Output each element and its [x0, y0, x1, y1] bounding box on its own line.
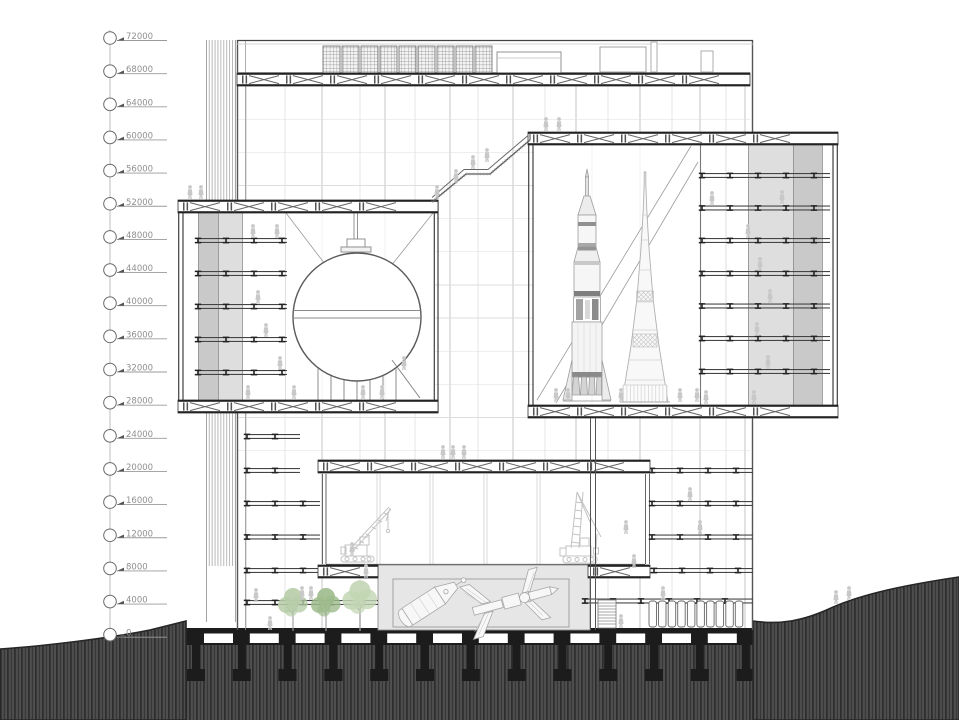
locker-unit: [687, 601, 704, 627]
floor-slab: [244, 468, 300, 474]
elevation-label: 32000: [126, 364, 153, 374]
floor-slab: [649, 501, 753, 507]
truss: [528, 132, 838, 145]
elevation-marker: 4000: [104, 595, 167, 608]
pile: [238, 645, 246, 669]
pile-footing: [691, 669, 709, 681]
elevation-marker: 60000: [104, 131, 167, 144]
exhibition-hall: [323, 473, 650, 565]
truss: [318, 460, 650, 473]
pile-footing: [553, 669, 571, 681]
human-figure: [188, 185, 193, 199]
main-roof-truss: [237, 73, 750, 86]
elevation-label: 4000: [126, 596, 148, 606]
elevation-label: 24000: [126, 430, 153, 440]
locker-unit: [707, 601, 724, 627]
elevation-marker: 32000: [104, 363, 167, 376]
floor-slab: [649, 468, 753, 474]
pile: [329, 645, 337, 669]
elevation-label: 52000: [126, 198, 153, 208]
tree: [342, 580, 377, 631]
elevation-scale: 7200068000640006000056000520004800044000…: [104, 30, 167, 641]
pile: [558, 645, 566, 669]
truss: [237, 73, 750, 86]
locker-doors: [649, 601, 743, 627]
roof-equipment-unit: [399, 46, 416, 73]
section-drawing-page: 7200068000640006000056000520004800044000…: [0, 0, 959, 720]
roof-equipment-unit: [323, 46, 340, 73]
roof-access-door: [701, 51, 713, 72]
elevation-marker: 72000: [104, 32, 167, 45]
elevation-label: 12000: [126, 529, 153, 539]
core-band-dark: [198, 213, 218, 400]
floor-slab: [244, 568, 320, 574]
pile: [604, 645, 612, 669]
truss: [528, 405, 838, 418]
elevation-marker: 56000: [104, 164, 167, 177]
pile-footing: [416, 669, 434, 681]
elevation-label: 8000: [126, 562, 148, 572]
human-figure: [544, 117, 549, 131]
elevation-marker: 28000: [104, 396, 167, 409]
elevation-marker: 12000: [104, 529, 167, 542]
floor-slab: [244, 434, 300, 440]
human-figure: [485, 148, 490, 162]
pile: [421, 645, 429, 669]
roof-equipment-unit: [456, 46, 473, 73]
human-figure: [847, 586, 852, 600]
pile: [192, 645, 200, 669]
elevation-marker: 44000: [104, 264, 167, 277]
elevation-label: 64000: [126, 98, 153, 108]
pile-footing: [737, 669, 755, 681]
pile: [467, 645, 475, 669]
elevation-label: 44000: [126, 264, 153, 274]
roof-equipment: [323, 42, 713, 73]
human-figure: [471, 155, 476, 169]
elevation-marker: 16000: [104, 496, 167, 509]
elevation-label: 48000: [126, 231, 153, 241]
locker-unit: [649, 601, 666, 627]
truss: [178, 200, 438, 213]
access-ramp: [432, 133, 530, 202]
roof-equipment-unit: [418, 46, 435, 73]
pile: [375, 645, 383, 669]
truss: [588, 565, 650, 578]
pile-footing: [324, 669, 342, 681]
pile: [513, 645, 521, 669]
elevation-label: 60000: [126, 131, 153, 141]
human-figure: [688, 487, 693, 501]
pile-footing: [645, 669, 663, 681]
pile: [696, 645, 704, 669]
human-figure: [254, 588, 259, 602]
roof-equipment-unit: [475, 46, 492, 73]
pile-footing: [370, 669, 388, 681]
elevation-marker: 52000: [104, 197, 167, 210]
truss: [318, 565, 378, 578]
elevation-label: 68000: [126, 65, 153, 75]
roof-equipment-unit: [342, 46, 359, 73]
terrain-right-slope: [753, 577, 959, 720]
roof-equipment-unit: [437, 46, 454, 73]
elevation-label: 56000: [126, 165, 153, 175]
elevation-label: 20000: [126, 463, 153, 473]
human-figure: [619, 614, 624, 628]
building-section: [178, 40, 852, 639]
elevation-label: 40000: [126, 297, 153, 307]
human-figure: [834, 590, 839, 604]
section-drawing: 7200068000640006000056000520004800044000…: [0, 0, 959, 720]
elevation-label: 36000: [126, 330, 153, 340]
floor-slab: [244, 534, 320, 540]
sphere-hall: [179, 200, 438, 413]
human-figure: [441, 445, 446, 459]
tree: [311, 588, 341, 631]
elevation-label: 0: [126, 629, 131, 639]
pile-footing: [187, 669, 205, 681]
elevation-marker: 48000: [104, 231, 167, 244]
human-figure: [451, 445, 456, 459]
locker-unit: [668, 601, 685, 627]
elevation-label: 28000: [126, 397, 153, 407]
pile-footing: [599, 669, 617, 681]
elevation-label: 72000: [126, 32, 153, 42]
pile-footing: [279, 669, 297, 681]
locker-unit: [726, 601, 743, 627]
pile: [742, 645, 750, 669]
pile-footing: [462, 669, 480, 681]
pile-footing: [508, 669, 526, 681]
pile: [284, 645, 292, 669]
exhibit-basin: [378, 562, 590, 639]
elevation-marker: 36000: [104, 330, 167, 343]
elevation-marker: 20000: [104, 463, 167, 476]
core-band-light: [218, 213, 242, 400]
trees: [278, 580, 377, 631]
human-figure: [199, 185, 204, 199]
truss: [178, 400, 438, 413]
human-figure: [557, 117, 562, 131]
terrain-left-slope: [0, 621, 186, 720]
pile-footing: [233, 669, 251, 681]
elevation-marker: 40000: [104, 297, 167, 310]
elevation-marker: 24000: [104, 430, 167, 443]
human-figure: [309, 586, 314, 600]
pile: [650, 645, 658, 669]
elevation-marker: 68000: [104, 65, 167, 78]
hall-truss: [318, 460, 650, 473]
human-figure: [462, 445, 467, 459]
roof-equipment-unit: [361, 46, 378, 73]
elevation-label: 16000: [126, 496, 153, 506]
elevation-marker: 8000: [104, 562, 167, 575]
floor-slab: [649, 534, 753, 540]
roof-equipment-unit: [380, 46, 397, 73]
human-figure: [661, 586, 666, 600]
elevation-marker: 64000: [104, 98, 167, 111]
human-figure: [268, 616, 273, 630]
floor-slab: [244, 501, 320, 507]
